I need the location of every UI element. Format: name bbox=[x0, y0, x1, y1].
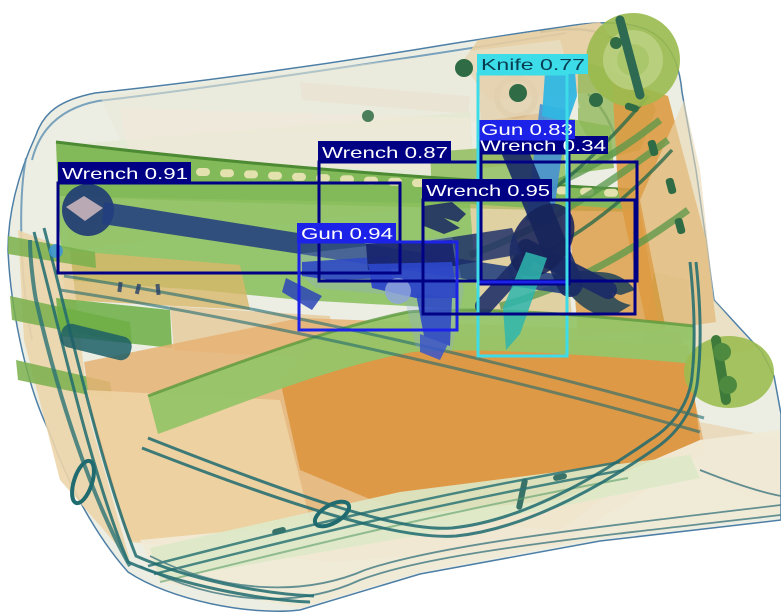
svg-text:Gun 0.83: Gun 0.83 bbox=[481, 122, 573, 139]
svg-text:Knife 0.77: Knife 0.77 bbox=[481, 57, 585, 74]
svg-text:Gun 0.94: Gun 0.94 bbox=[301, 226, 393, 243]
svg-text:Wrench 0.91: Wrench 0.91 bbox=[62, 166, 188, 183]
svg-text:Wrench 0.34: Wrench 0.34 bbox=[480, 138, 606, 155]
svg-text:Wrench 0.95: Wrench 0.95 bbox=[426, 183, 550, 200]
svg-text:Wrench 0.87: Wrench 0.87 bbox=[322, 145, 448, 162]
